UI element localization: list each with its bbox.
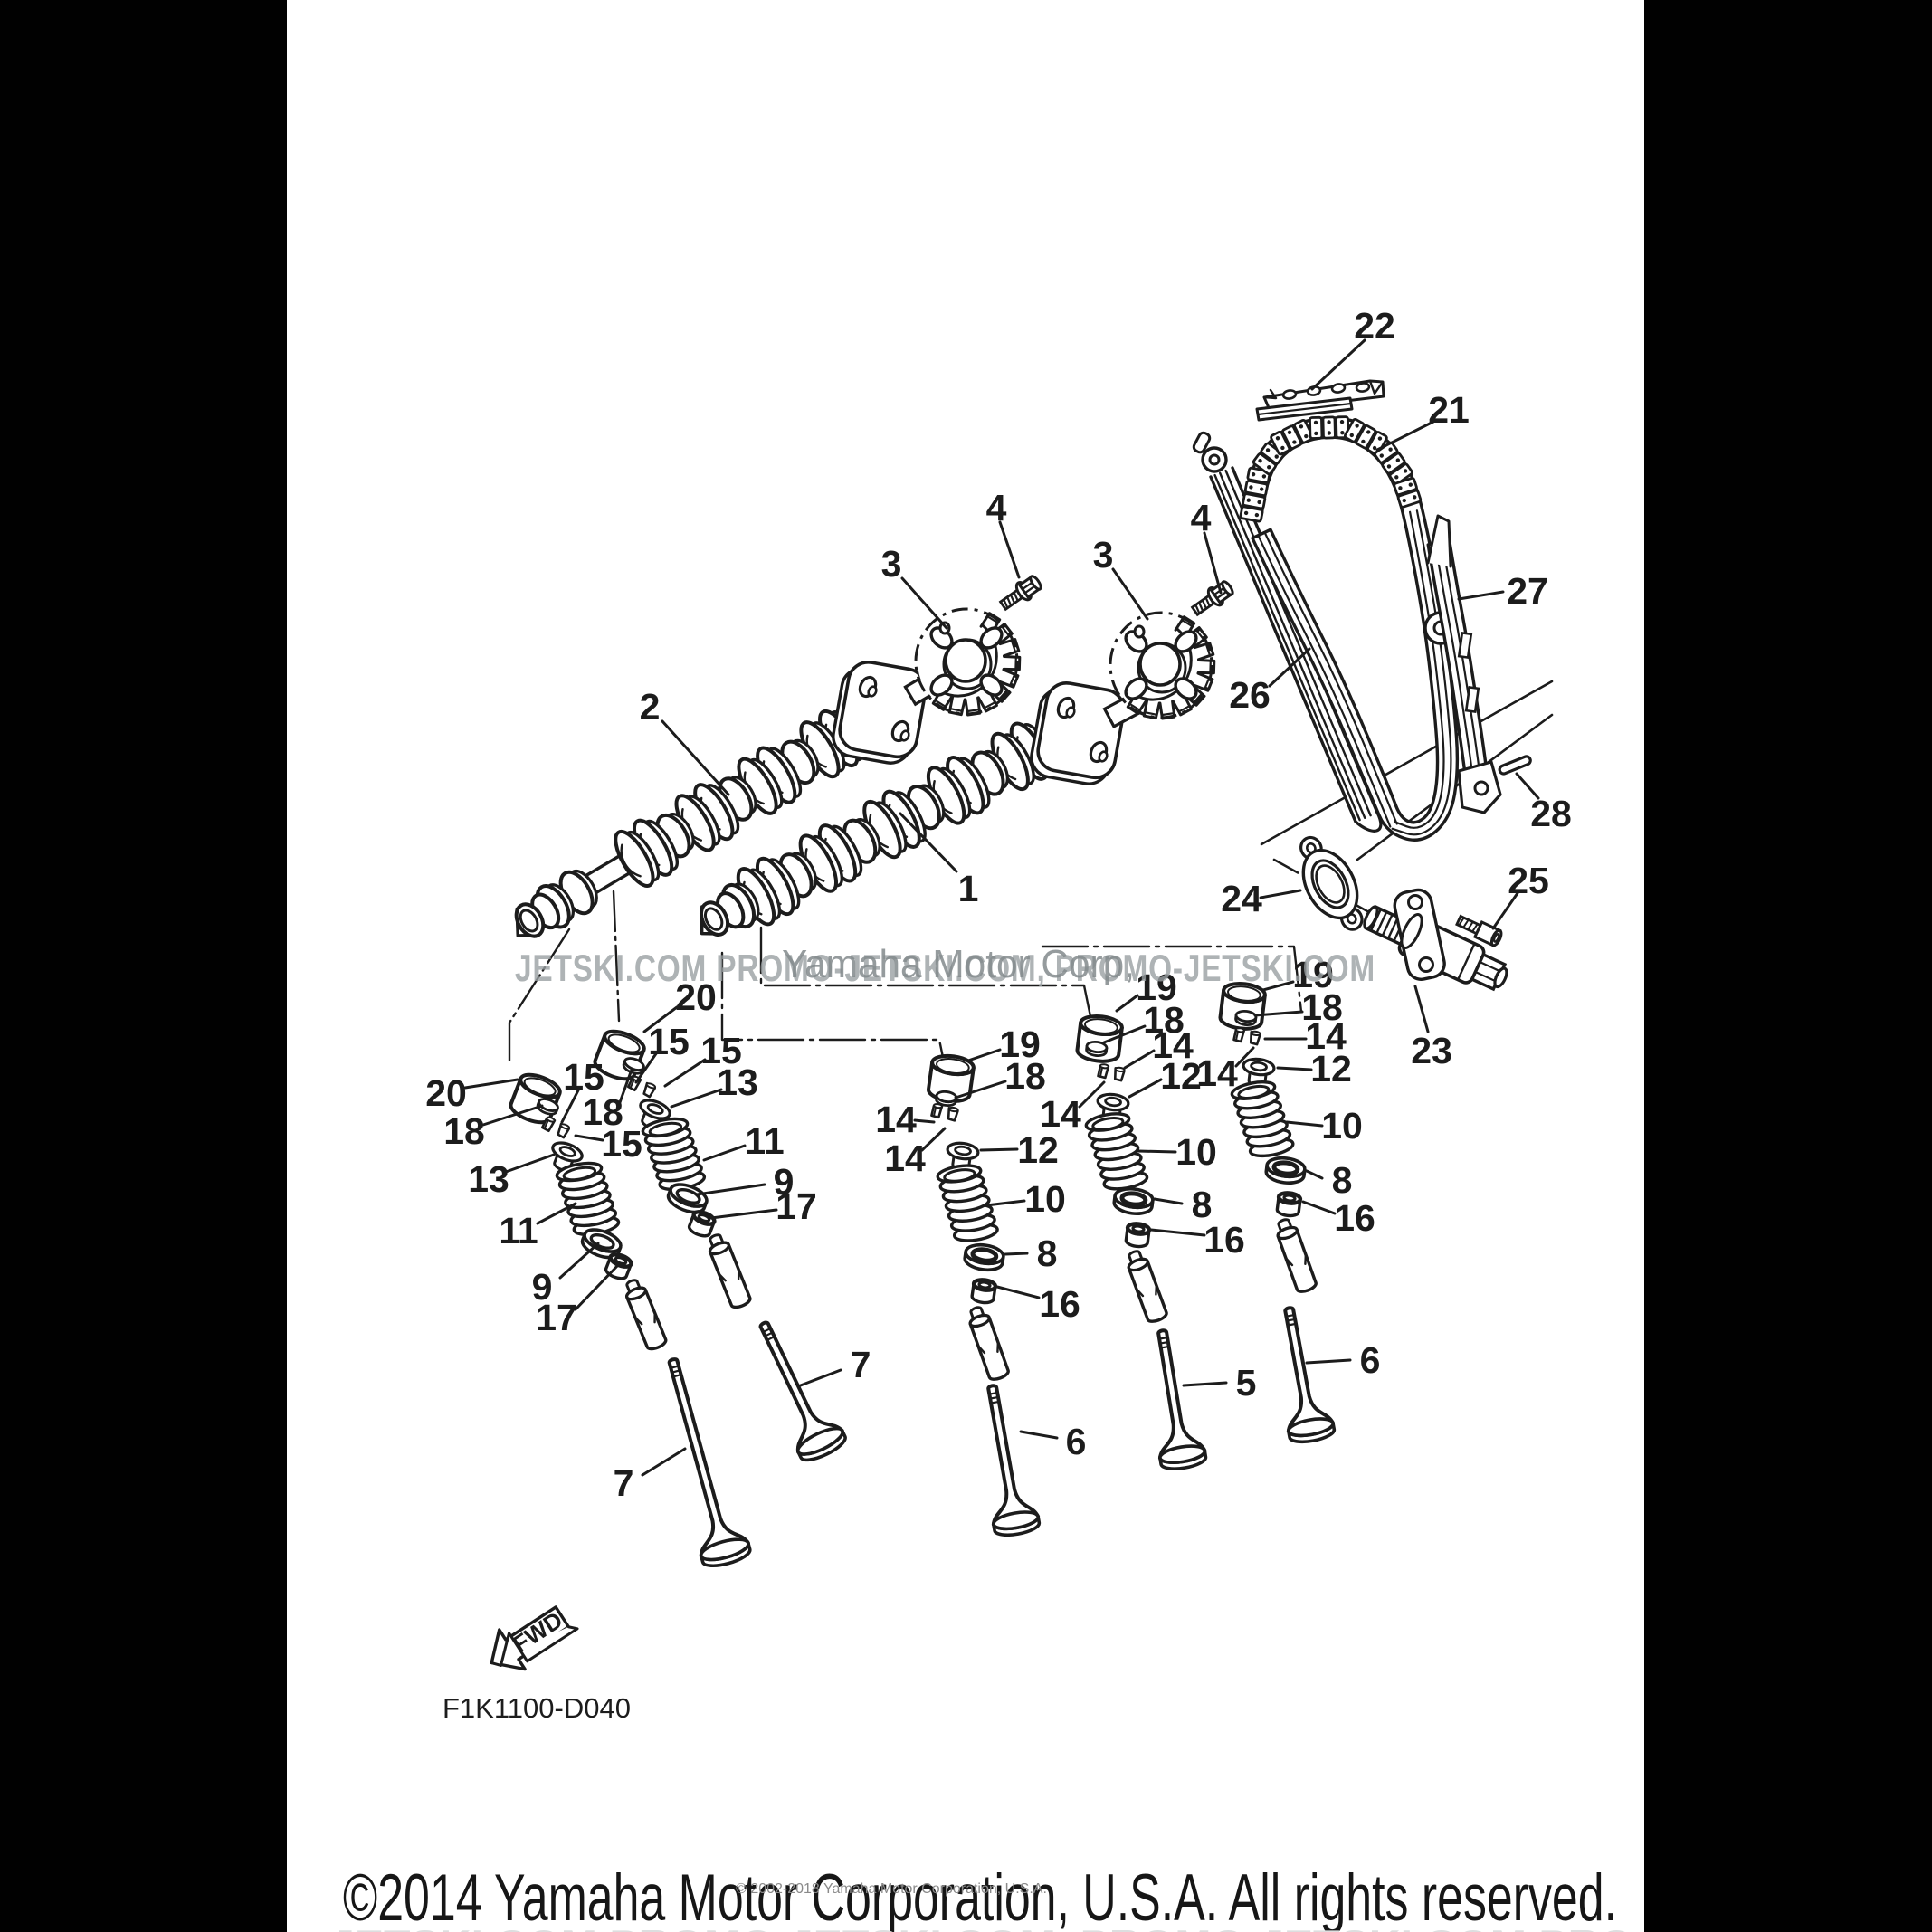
svg-text:23: 23 bbox=[1411, 1030, 1452, 1071]
svg-text:25: 25 bbox=[1508, 860, 1549, 901]
svg-text:15: 15 bbox=[648, 1021, 690, 1062]
svg-text:11: 11 bbox=[745, 1120, 784, 1162]
svg-text:28: 28 bbox=[1530, 793, 1572, 834]
svg-text:2: 2 bbox=[640, 686, 661, 728]
svg-text:4: 4 bbox=[986, 487, 1007, 528]
svg-text:Yamaha Motor Corp,: Yamaha Motor Corp, bbox=[782, 942, 1135, 986]
svg-text:27: 27 bbox=[1507, 570, 1548, 612]
svg-text:16: 16 bbox=[1334, 1197, 1375, 1239]
svg-text:17: 17 bbox=[776, 1185, 817, 1227]
svg-text:7: 7 bbox=[851, 1344, 871, 1385]
svg-text:21: 21 bbox=[1428, 389, 1470, 431]
svg-text:26: 26 bbox=[1229, 674, 1271, 716]
svg-text:24: 24 bbox=[1221, 878, 1262, 919]
svg-text:17: 17 bbox=[536, 1297, 577, 1338]
svg-text:13: 13 bbox=[468, 1158, 509, 1200]
svg-text:14: 14 bbox=[884, 1137, 926, 1179]
svg-text:5: 5 bbox=[1236, 1362, 1257, 1404]
svg-text:3: 3 bbox=[881, 543, 902, 585]
svg-text:16: 16 bbox=[1204, 1219, 1245, 1261]
svg-text:13: 13 bbox=[717, 1061, 758, 1103]
svg-text:6: 6 bbox=[1066, 1421, 1087, 1462]
svg-text:18: 18 bbox=[1004, 1055, 1046, 1097]
svg-text:15: 15 bbox=[601, 1123, 642, 1165]
svg-text:11: 11 bbox=[499, 1210, 538, 1252]
svg-text:4: 4 bbox=[1191, 497, 1212, 538]
svg-text:8: 8 bbox=[1037, 1232, 1058, 1274]
svg-text:8: 8 bbox=[1332, 1159, 1353, 1201]
svg-text:3: 3 bbox=[1093, 534, 1114, 576]
svg-text:1: 1 bbox=[958, 868, 979, 909]
svg-text:10: 10 bbox=[1321, 1105, 1363, 1147]
svg-text:22: 22 bbox=[1354, 305, 1395, 347]
svg-text:10: 10 bbox=[1024, 1178, 1066, 1220]
svg-text:7: 7 bbox=[614, 1462, 634, 1504]
svg-text:18: 18 bbox=[443, 1110, 485, 1152]
svg-text:20: 20 bbox=[425, 1072, 467, 1114]
svg-text:12: 12 bbox=[1310, 1048, 1352, 1090]
svg-text:14: 14 bbox=[875, 1099, 917, 1140]
svg-text:14: 14 bbox=[1196, 1052, 1238, 1094]
svg-text:12: 12 bbox=[1160, 1055, 1202, 1097]
svg-text:12: 12 bbox=[1017, 1129, 1059, 1171]
svg-text:15: 15 bbox=[563, 1056, 604, 1098]
svg-text:6: 6 bbox=[1360, 1339, 1381, 1381]
svg-text:F1K1100-D040: F1K1100-D040 bbox=[443, 1692, 631, 1724]
svg-text:10: 10 bbox=[1175, 1131, 1217, 1173]
svg-text:16: 16 bbox=[1039, 1283, 1080, 1325]
svg-text:JETSKI.COM PROMO-JETSKI.COM, P: JETSKI.COM PROMO-JETSKI.COM, PROMO-JETSK… bbox=[330, 1922, 1633, 1932]
svg-text:© 2002-2018 Yamaha Motor Corpo: © 2002-2018 Yamaha Motor Corporation, U.… bbox=[736, 1881, 1047, 1897]
